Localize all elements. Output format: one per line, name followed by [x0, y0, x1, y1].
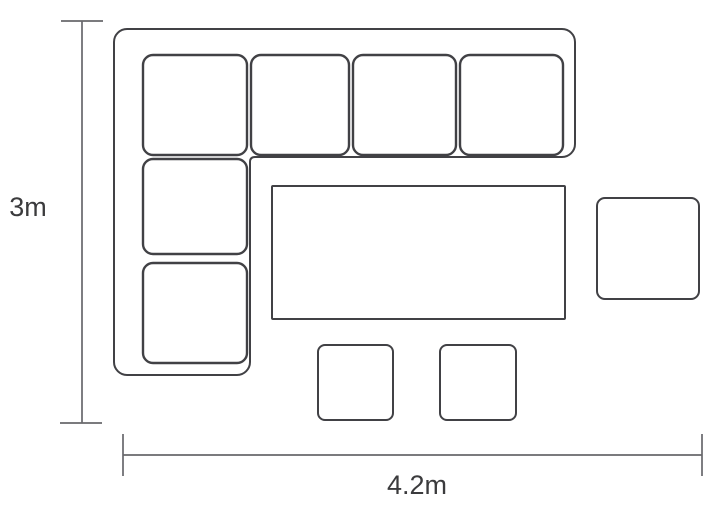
stool-bottom-right [440, 345, 516, 420]
seat-cushion-5 [143, 159, 247, 254]
width-dimension-label: 4.2m [387, 470, 447, 500]
seat-cushion-4 [460, 55, 563, 155]
floor-plan-canvas: 3m 4.2m [0, 0, 721, 513]
seat-cushion-3 [353, 55, 456, 155]
side-table-right [597, 198, 699, 299]
stool-bottom-left [318, 345, 393, 420]
floor-plan-svg: 3m 4.2m [0, 0, 721, 513]
seat-cushion-1 [143, 55, 247, 155]
height-dimension-label: 3m [9, 192, 47, 222]
seat-cushion-6 [143, 263, 247, 363]
seat-cushion-2 [251, 55, 349, 155]
dining-table [272, 186, 565, 319]
tables-group [272, 186, 699, 420]
